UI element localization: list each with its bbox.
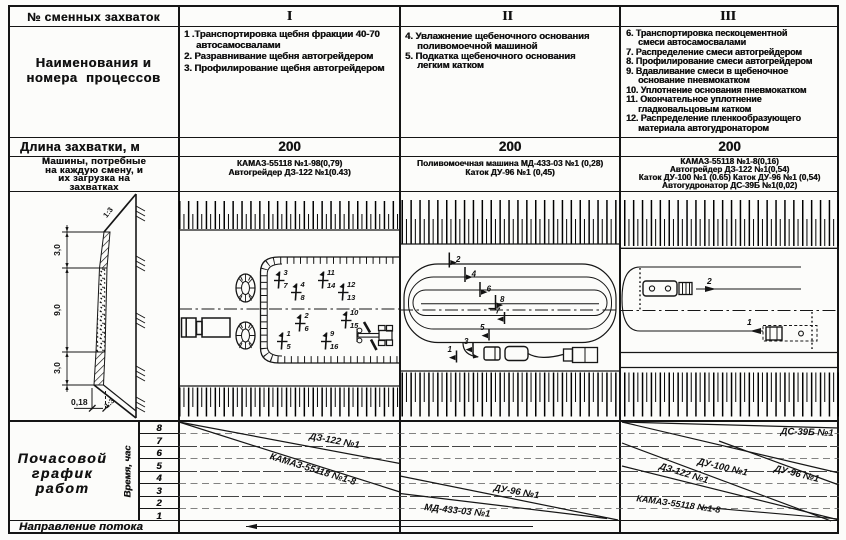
svg-text:1:3: 1:3 [101,205,115,219]
svg-text:0,18: 0,18 [71,397,88,407]
svg-text:2: 2 [706,276,712,286]
svg-text:МД-433-03 №1: МД-433-03 №1 [424,502,491,520]
svg-text:7: 7 [284,281,289,290]
svg-text:2: 2 [455,255,461,264]
svg-text:1:3: 1:3 [102,396,116,410]
svg-text:10: 10 [350,308,359,317]
svg-text:КАМАЗ-55118 №1-8: КАМАЗ-55118 №1-8 [268,451,357,488]
svg-text:1: 1 [747,317,752,327]
svg-text:ДС-39Б №1: ДС-39Б №1 [779,426,833,439]
svg-text:16: 16 [330,342,339,351]
svg-text:3,0: 3,0 [52,244,62,256]
svg-text:5: 5 [287,342,292,351]
svg-text:ДУ-96 №1: ДУ-96 №1 [772,463,820,485]
svg-text:9,0: 9,0 [52,304,62,316]
svg-text:4: 4 [471,270,477,279]
svg-text:7: 7 [496,307,501,316]
svg-text:11: 11 [327,268,335,277]
svg-text:14: 14 [327,281,336,290]
svg-text:1: 1 [287,329,291,338]
svg-text:13: 13 [347,293,356,302]
svg-text:9: 9 [330,329,335,338]
svg-text:5: 5 [480,323,485,332]
svg-text:12: 12 [347,280,356,289]
svg-text:1: 1 [448,345,453,354]
svg-text:2: 2 [304,311,310,320]
svg-text:3: 3 [284,268,289,277]
svg-text:ДУ-96 №1: ДУ-96 №1 [492,482,540,501]
svg-text:8: 8 [301,293,306,302]
svg-text:6: 6 [305,324,310,333]
svg-text:8: 8 [500,295,505,304]
svg-text:4: 4 [300,280,306,289]
svg-text:3: 3 [464,337,469,346]
svg-text:6: 6 [487,285,492,294]
svg-text:3,0: 3,0 [52,362,62,374]
